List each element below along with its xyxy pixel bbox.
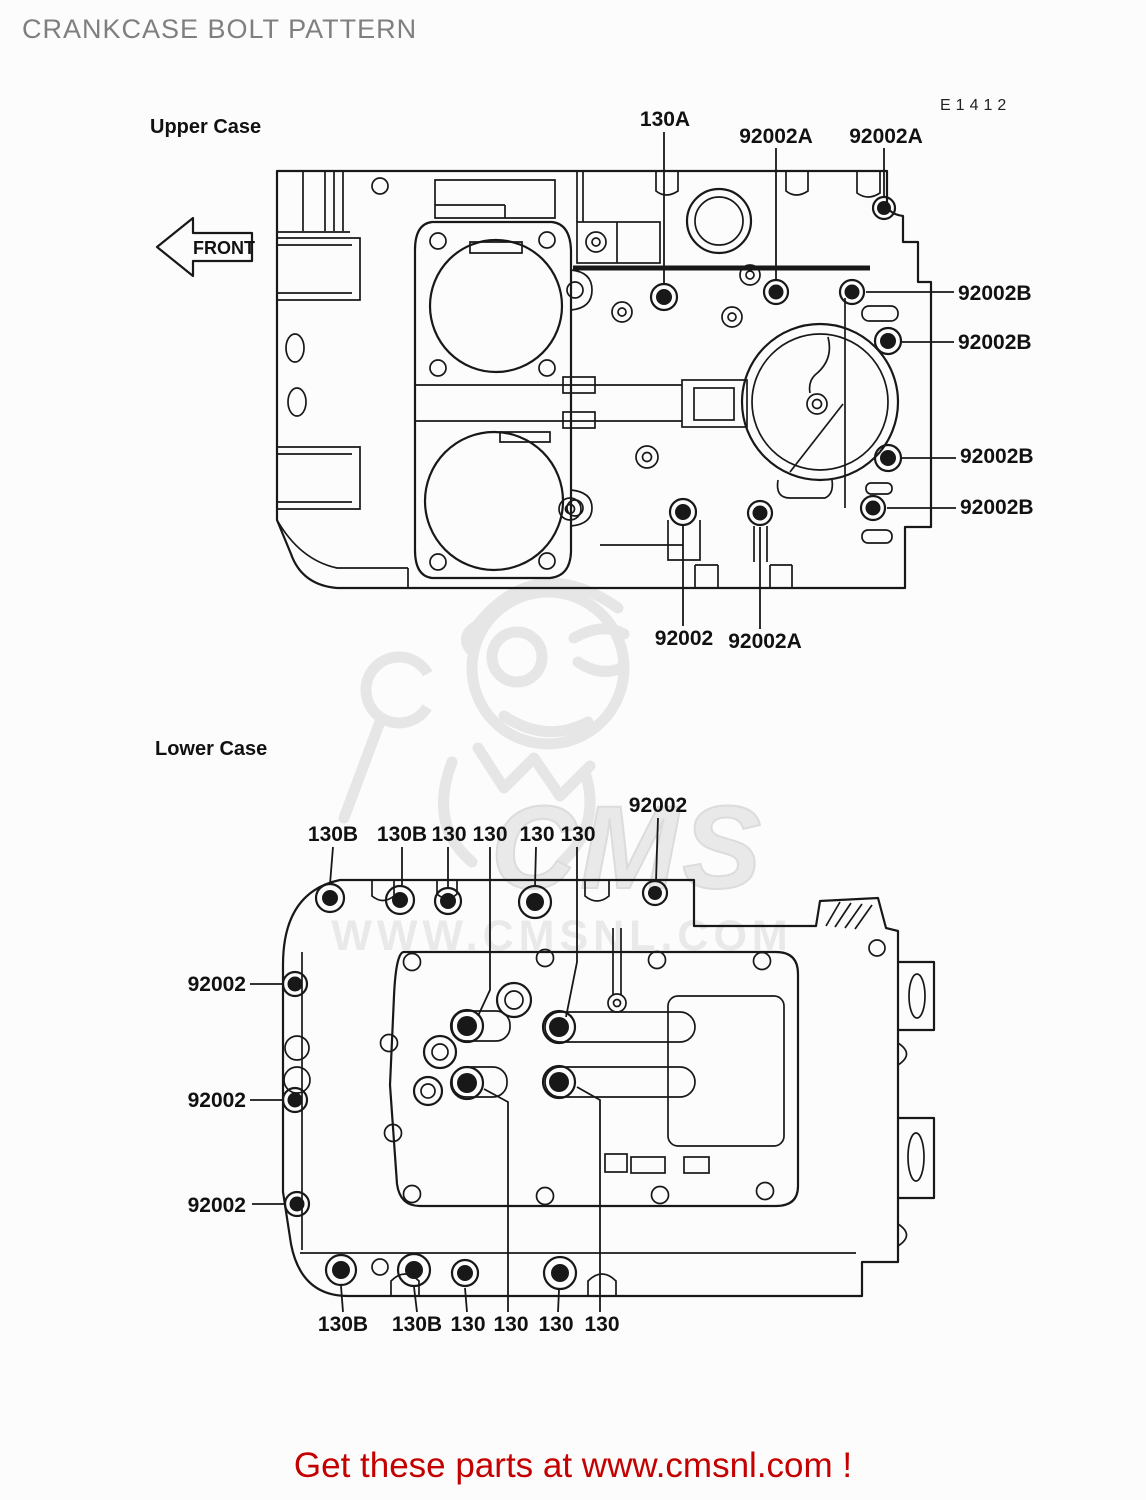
front-arrow-label: FRONT [193,238,255,258]
callout-92002b-1: 92002B [958,282,1032,305]
diagram-canvas: CMS WWW.CMSNL.COM [0,0,1146,1500]
callout-lower-bottom-130-3: 130 [538,1313,573,1336]
footer-shop-link[interactable]: Get these parts at www.cmsnl.com ! [0,1446,1146,1486]
callout-130a: 130A [640,108,690,131]
callout-92002b-3: 92002B [960,445,1034,468]
callout-lower-bottom-130-2: 130 [493,1313,528,1336]
callout-lower-92002-left-2: 92002 [188,1089,246,1112]
callout-lower-top-130b-1: 130B [308,823,358,846]
callout-lower-top-130-1: 130 [431,823,466,846]
callout-lower-top-130-3: 130 [519,823,554,846]
callout-lower-top-130-4: 130 [560,823,595,846]
callout-lower-92002-left-3: 92002 [188,1194,246,1217]
callout-lower-top-130-2: 130 [472,823,507,846]
callout-lower-bottom-130b-1: 130B [318,1313,368,1336]
callout-92002a-upper-bottom: 92002A [728,630,802,653]
front-arrow: FRONT [157,218,255,276]
upper-case-label: Upper Case [150,116,261,138]
callout-92002a-top-2: 92002A [849,125,923,148]
callout-lower-bottom-130b-2: 130B [392,1313,442,1336]
callout-lower-92002-top: 92002 [629,794,687,817]
callout-92002a-top-1: 92002A [739,125,813,148]
callout-lower-bottom-130-1: 130 [450,1313,485,1336]
lower-case-label: Lower Case [155,738,267,760]
callout-lower-top-130b-2: 130B [377,823,427,846]
callout-lower-bottom-130-4: 130 [584,1313,619,1336]
callout-92002b-2: 92002B [958,331,1032,354]
callout-92002b-4: 92002B [960,496,1034,519]
diagram-code: E1412 [940,97,1011,114]
gasket-bolt-holes-lower [381,950,774,1205]
parts-diagram-page: CRANKCASE BOLT PATTERN CMS WWW.CMSNL.COM [0,0,1146,1500]
callout-92002-upper-bottom: 92002 [655,627,713,650]
upper-case-drawing [277,171,931,588]
callout-lower-92002-left-1: 92002 [188,973,246,996]
